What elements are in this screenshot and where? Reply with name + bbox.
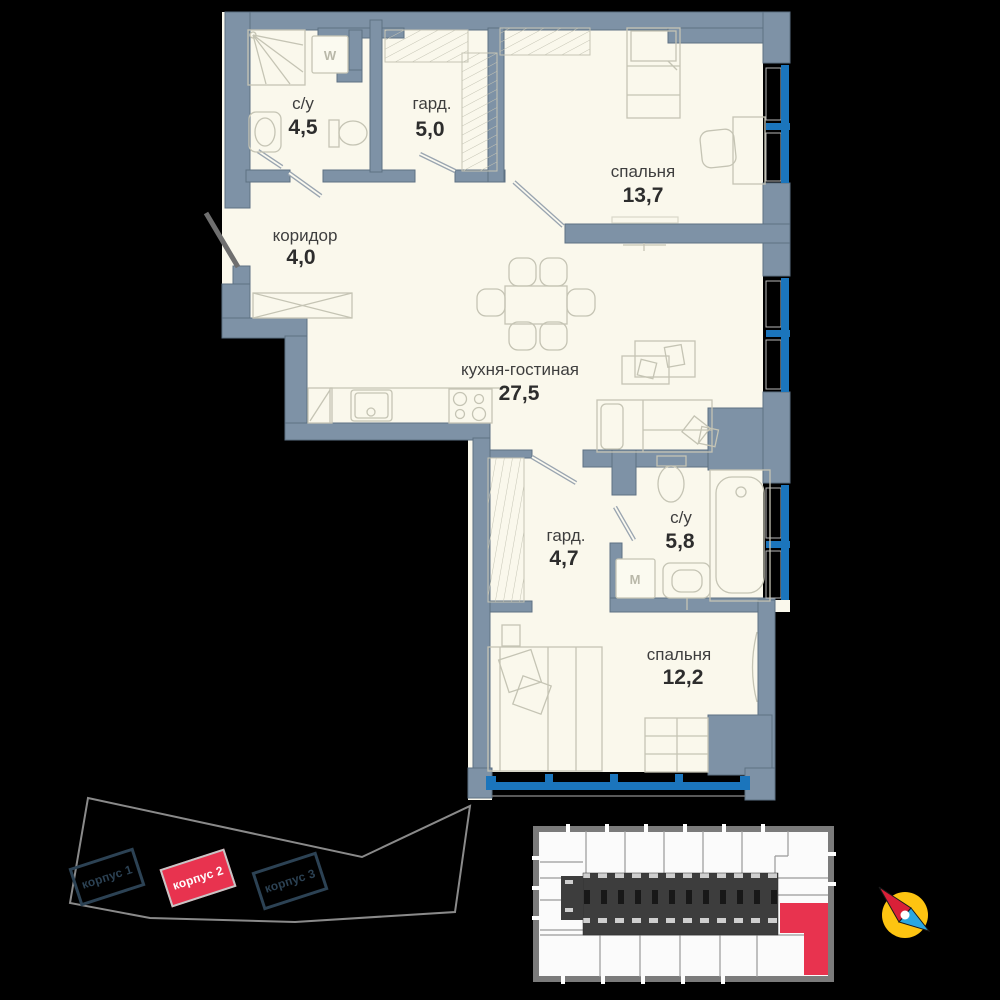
- svg-text:кухня-гостиная: кухня-гостиная: [461, 360, 579, 379]
- room-label-bathroom-58: с/у5,8: [665, 508, 695, 553]
- apartment-floorplan: W: [206, 12, 790, 800]
- svg-text:4,5: 4,5: [288, 116, 318, 139]
- washing-machine-icon: M: [616, 559, 655, 598]
- svg-text:5,0: 5,0: [415, 118, 444, 141]
- svg-text:спальня: спальня: [611, 162, 676, 181]
- svg-text:27,5: 27,5: [499, 382, 540, 405]
- minimap-core: [583, 873, 778, 935]
- svg-text:12,2: 12,2: [663, 666, 704, 689]
- svg-text:4,0: 4,0: [286, 246, 315, 269]
- svg-text:гард.: гард.: [547, 526, 586, 545]
- floorplan-viewer: W: [0, 0, 1000, 1000]
- room-label-bathroom-45: с/у4,5: [288, 94, 318, 139]
- svg-text:5,8: 5,8: [665, 530, 695, 553]
- svg-text:4,7: 4,7: [549, 547, 578, 570]
- floorplan-svg: W: [0, 0, 1000, 1000]
- svg-text:коридор: коридор: [273, 226, 338, 245]
- svg-text:M: M: [630, 572, 641, 587]
- svg-text:с/у: с/у: [292, 94, 314, 113]
- svg-text:13,7: 13,7: [623, 184, 664, 207]
- svg-text:спальня: спальня: [647, 645, 712, 664]
- svg-text:с/у: с/у: [670, 508, 692, 527]
- washing-machine-icon: W: [312, 36, 348, 73]
- svg-text:W: W: [324, 48, 337, 63]
- svg-text:гард.: гард.: [413, 94, 452, 113]
- floor-minimap: [532, 824, 836, 984]
- compass-icon: [879, 887, 929, 938]
